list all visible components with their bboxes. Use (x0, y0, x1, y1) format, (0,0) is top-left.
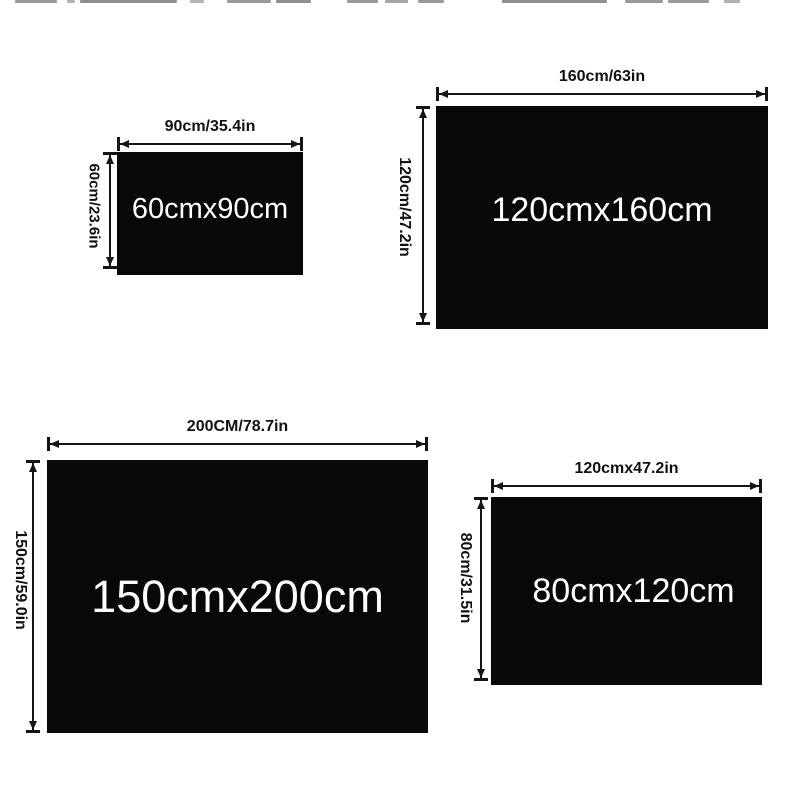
size-text: 80cmx120cm (532, 572, 734, 611)
size-rectangle-150x200: 150cmx200cm (47, 460, 428, 733)
dimension-arrow-horizontal (47, 437, 428, 451)
width-dimension-80x120: 120cmx47.2in (491, 460, 762, 493)
size-text: 150cmx200cm (91, 571, 384, 623)
width-dimension-120x160: 160cm/63in (436, 68, 768, 101)
height-label: 80cm/31.5in (456, 533, 474, 624)
height-label: 60cm/23.6in (86, 163, 103, 248)
width-dimension-60x90: 90cm/35.4in (117, 118, 303, 151)
width-label: 120cmx47.2in (491, 460, 762, 478)
height-label: 120cm/47.2in (395, 157, 413, 257)
cropped-text-fragment (347, 0, 378, 3)
width-dimension-150x200: 200CM/78.7in (47, 418, 428, 451)
cropped-text-fragment (227, 0, 271, 3)
height-dimension-60x90 (103, 152, 117, 269)
height-dimension-80x120 (474, 497, 488, 681)
width-label: 90cm/35.4in (117, 118, 303, 136)
cropped-text-fragment (190, 0, 204, 3)
size-rectangle-60x90: 60cmx90cm (117, 152, 303, 275)
cropped-text-fragment (625, 0, 663, 3)
cropped-text-fragment (276, 0, 311, 3)
size-rectangle-120x160: 120cmx160cm (436, 106, 768, 329)
dimension-arrow-horizontal (117, 137, 303, 151)
dimension-arrow-horizontal (491, 479, 762, 493)
height-dimension-120x160 (416, 106, 430, 325)
cropped-text-fragment (502, 0, 607, 3)
cropped-text-fragment (15, 0, 57, 3)
cropped-text-fragment (668, 0, 709, 3)
cropped-text-fragment (80, 0, 177, 3)
size-text: 60cmx90cm (132, 193, 288, 226)
size-chart: 90cm/35.4in 60cm/23.6in 60cmx90cm 160cm/… (0, 0, 800, 800)
width-label: 160cm/63in (436, 68, 768, 86)
width-label: 200CM/78.7in (47, 418, 428, 436)
cropped-top-text (0, 0, 800, 6)
cropped-text-fragment (385, 0, 408, 3)
height-label: 150cm/59.0in (11, 530, 29, 630)
size-rectangle-80x120: 80cmx120cm (491, 497, 762, 685)
cropped-text-fragment (724, 0, 740, 3)
cropped-text-fragment (418, 0, 444, 3)
dimension-arrow-horizontal (436, 87, 768, 101)
cropped-text-fragment (67, 0, 75, 3)
size-text: 120cmx160cm (491, 191, 712, 230)
